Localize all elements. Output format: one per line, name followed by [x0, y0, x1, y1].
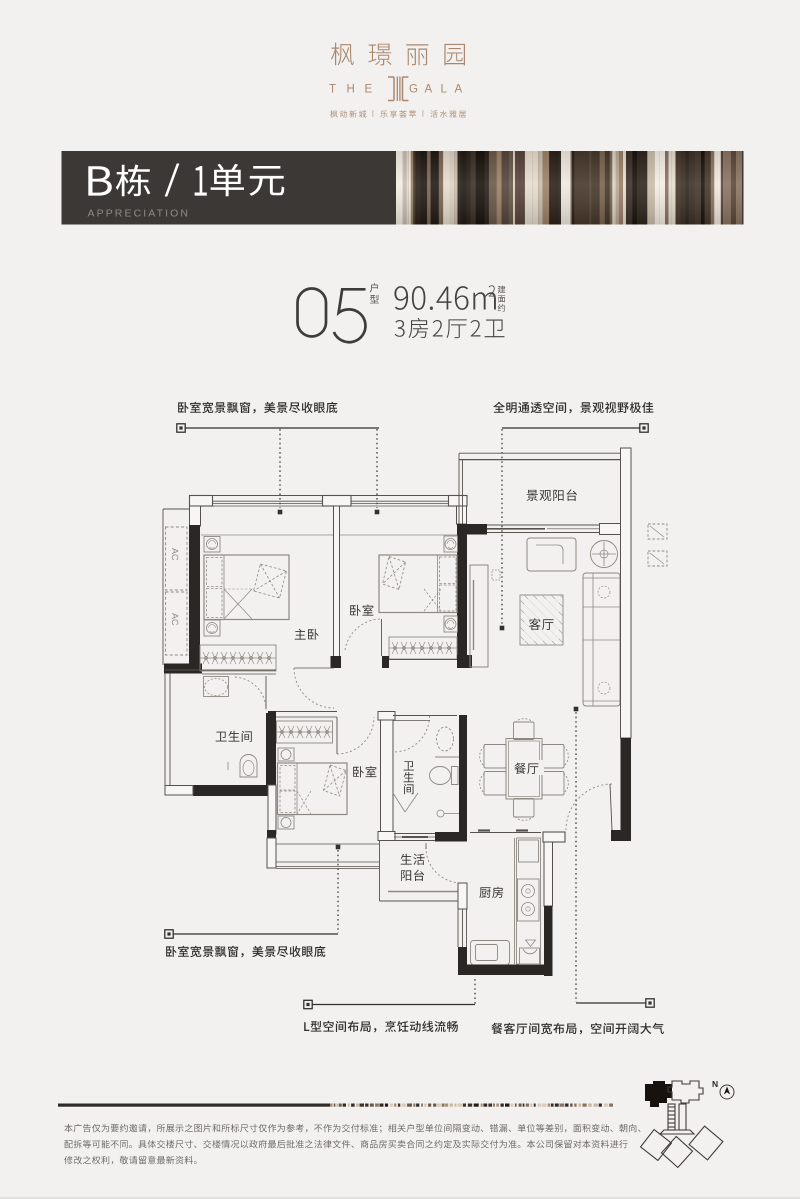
svg-text:E: E	[365, 84, 373, 96]
svg-text:N: N	[712, 1079, 718, 1089]
svg-text:A: A	[455, 84, 463, 96]
svg-text:G: G	[409, 84, 418, 96]
svg-text:T: T	[329, 84, 336, 96]
svg-text:A: A	[425, 84, 433, 96]
svg-text:APPRECIATION: APPRECIATION	[88, 208, 191, 220]
svg-text:H: H	[347, 84, 355, 96]
svg-text:L: L	[441, 84, 448, 96]
